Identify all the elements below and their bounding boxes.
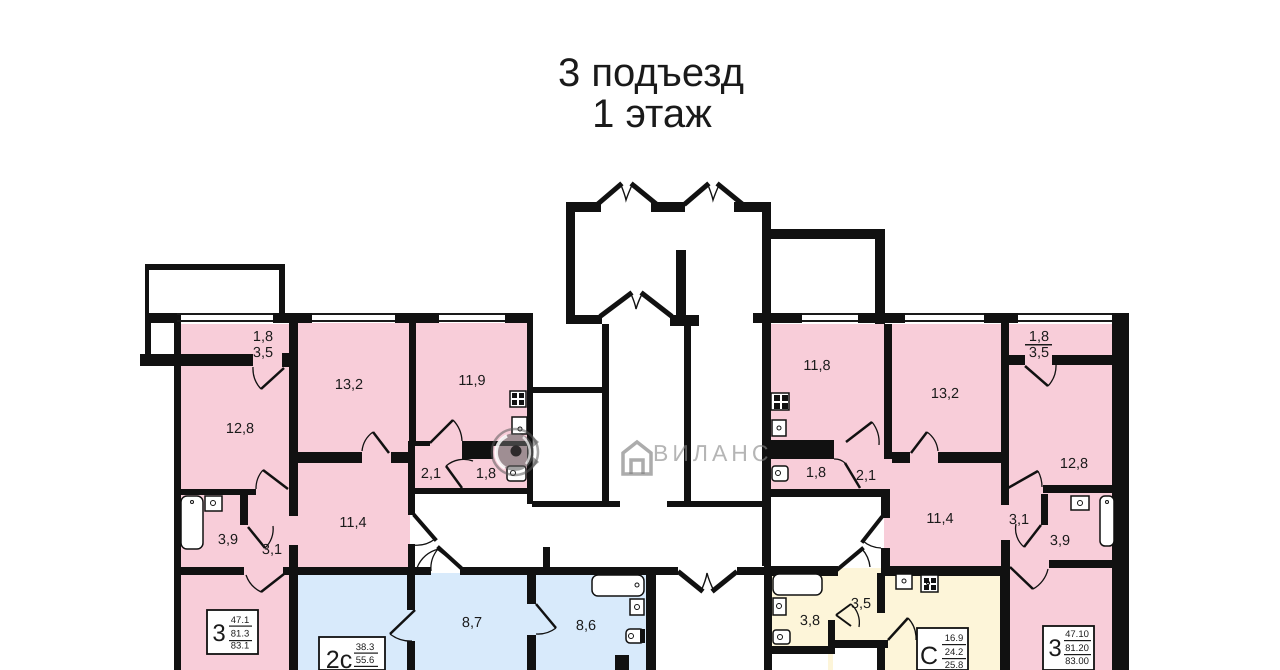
svg-text:1,8: 1,8 (253, 329, 273, 345)
svg-text:3 подъезд: 3 подъезд (558, 51, 744, 95)
svg-text:3: 3 (1048, 635, 1061, 662)
svg-text:3,5: 3,5 (1029, 345, 1049, 361)
svg-text:2с: 2с (326, 646, 352, 670)
svg-text:13,2: 13,2 (335, 377, 363, 393)
svg-text:11,8: 11,8 (803, 358, 830, 374)
svg-text:11,9: 11,9 (458, 373, 485, 389)
svg-text:11,4: 11,4 (926, 511, 953, 527)
svg-text:12,8: 12,8 (1060, 456, 1088, 472)
svg-text:8,6: 8,6 (576, 618, 596, 634)
svg-text:24.2: 24.2 (945, 647, 964, 658)
svg-text:ВИЛАНС: ВИЛАНС (653, 440, 773, 466)
svg-text:2,1: 2,1 (421, 466, 441, 482)
svg-text:3,5: 3,5 (851, 596, 871, 612)
svg-text:47.10: 47.10 (1065, 629, 1089, 640)
svg-text:47.1: 47.1 (231, 615, 250, 626)
svg-text:1,8: 1,8 (1029, 329, 1049, 345)
svg-text:25.8: 25.8 (945, 660, 964, 670)
svg-text:81.20: 81.20 (1065, 643, 1089, 654)
svg-text:1,8: 1,8 (806, 465, 826, 481)
svg-text:3,8: 3,8 (800, 613, 820, 629)
svg-text:3: 3 (212, 620, 225, 647)
svg-text:1,8: 1,8 (476, 466, 496, 482)
svg-text:11,4: 11,4 (339, 515, 366, 531)
svg-text:3,9: 3,9 (1050, 533, 1070, 549)
svg-text:3,1: 3,1 (1009, 512, 1029, 528)
svg-text:55.6: 55.6 (356, 655, 375, 666)
svg-text:13,2: 13,2 (931, 386, 959, 402)
svg-text:38.3: 38.3 (356, 642, 375, 653)
svg-text:3,5: 3,5 (253, 345, 273, 361)
svg-text:16.9: 16.9 (945, 633, 964, 644)
svg-text:С: С (920, 642, 938, 670)
svg-text:81.3: 81.3 (231, 629, 250, 640)
svg-text:12,8: 12,8 (226, 421, 254, 437)
svg-text:3,1: 3,1 (262, 542, 282, 558)
svg-text:83.00: 83.00 (1065, 656, 1089, 667)
svg-text:1 этаж: 1 этаж (592, 92, 712, 136)
svg-text:83.1: 83.1 (231, 641, 250, 652)
svg-text:8,7: 8,7 (462, 615, 482, 631)
svg-text:3,9: 3,9 (218, 532, 238, 548)
svg-text:2,1: 2,1 (856, 468, 876, 484)
